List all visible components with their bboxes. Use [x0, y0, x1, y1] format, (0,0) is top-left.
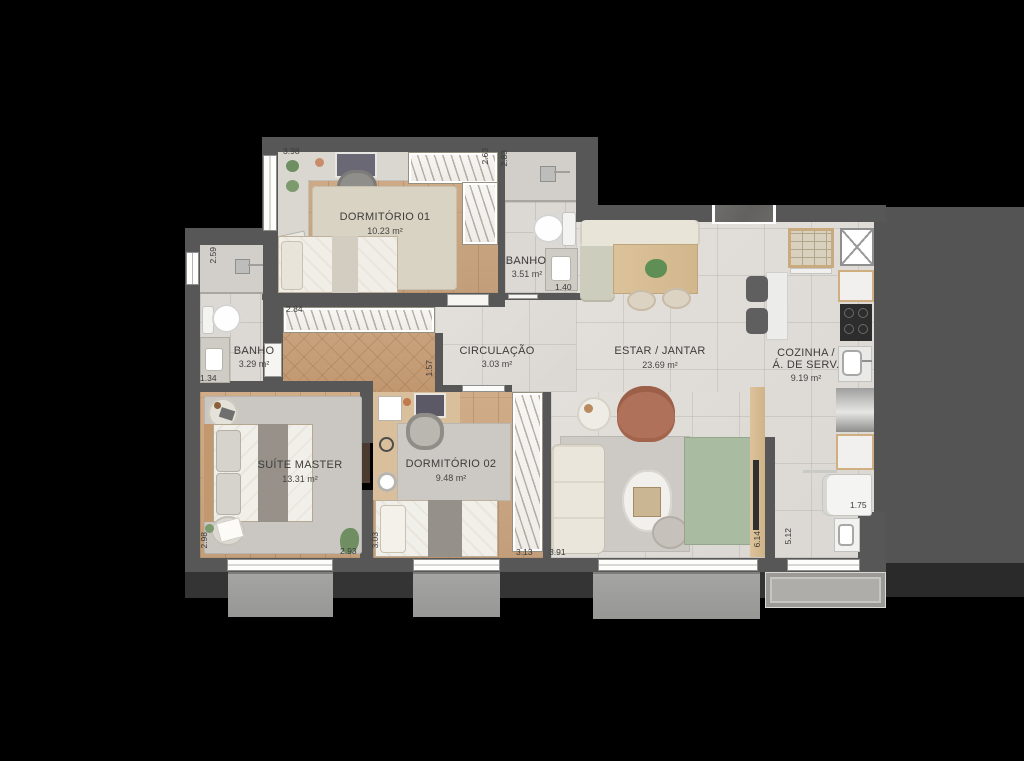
label-cozinha-area: 9.19 m² [791, 373, 822, 383]
tv-icon [753, 460, 759, 530]
living-balcony-slab [593, 572, 760, 619]
suite-bed-headboard [204, 424, 213, 522]
plant-icon [286, 160, 299, 172]
dim-living-depth: 6.14 [752, 531, 762, 548]
floor-plan: DORMITÓRIO 01 10.23 m² BANHO 3.51 m² BAN… [0, 0, 1024, 761]
label-circulacao-area: 3.03 m² [482, 359, 513, 369]
service-window [787, 559, 860, 571]
desk-deco [315, 158, 324, 167]
side-table-round [577, 397, 611, 431]
table-deco [214, 402, 221, 409]
dim-dorm01-width: 3.98 [283, 146, 300, 156]
dishwasher [836, 388, 874, 432]
wall [505, 385, 512, 392]
dorm02-closet [512, 392, 543, 552]
wall [858, 512, 886, 558]
wall [498, 152, 505, 300]
dim-suite-depth: 2.98 [199, 532, 209, 549]
bar-chair [746, 276, 768, 302]
neighbor-mass [874, 207, 1024, 563]
sink-basin [205, 348, 223, 371]
dorm02-balcony-slab [413, 572, 500, 617]
wall [262, 137, 598, 152]
wall [435, 333, 443, 392]
wall [443, 385, 462, 392]
dorm01-door-threshold [447, 294, 489, 306]
neighbor-mass-base [874, 563, 1024, 597]
dorm01-closet-side [462, 182, 498, 245]
sink-tap [862, 360, 872, 362]
sofa-vertical [551, 444, 605, 554]
shower-pipe [554, 171, 570, 173]
toilet-tank [562, 212, 576, 246]
plant-icon [286, 180, 299, 192]
kitchen-divider [803, 470, 837, 473]
toilet-icon [533, 214, 564, 243]
dorm02-door-leaf [462, 385, 505, 392]
service-terrace [765, 572, 886, 608]
dim-dorm02-width: 3.13 [516, 547, 533, 557]
table-deco [584, 404, 593, 413]
entry-door-mat [712, 205, 776, 224]
kitchen-sink-basin [842, 350, 862, 376]
toilet-icon [212, 304, 241, 333]
living-window [598, 559, 758, 571]
laundry-basin [838, 524, 854, 546]
desk-deco [403, 398, 411, 406]
dim-suite-width: 2.93 [340, 546, 357, 556]
banho1-door-threshold [508, 294, 538, 299]
label-dorm02-area: 9.48 m² [436, 473, 467, 483]
shower-pipe [248, 264, 263, 266]
label-dorm01: DORMITÓRIO 01 [340, 211, 431, 223]
label-estar-area: 23.69 m² [642, 360, 678, 370]
dorm02-bed-runner [428, 500, 462, 557]
wall [543, 392, 551, 558]
dim-hall-depth: 1.57 [424, 360, 434, 377]
cooktop-burner [858, 308, 868, 318]
label-dorm02: DORMITÓRIO 02 [406, 458, 497, 470]
pillow [281, 241, 303, 290]
cooktop-burner [844, 324, 854, 334]
headphones-icon [379, 437, 394, 452]
label-estar: ESTAR / JANTAR [614, 345, 705, 357]
sink-basin [551, 256, 571, 281]
sofa-corner-chaise [580, 246, 615, 302]
label-banho2-area: 3.29 m² [239, 359, 270, 369]
label-suite: SUÍTE MASTER [258, 459, 343, 471]
dorm01-window [263, 155, 277, 231]
dim-banho2-depth: 2.59 [208, 247, 218, 264]
wall [765, 437, 775, 558]
shower-head-icon [540, 166, 556, 182]
suite-balcony-slab [228, 572, 333, 617]
armchair [617, 386, 675, 442]
label-dorm01-area: 10.23 m² [367, 226, 403, 236]
label-banho2: BANHO [234, 345, 275, 357]
label-banho1-area: 3.51 m² [512, 269, 543, 279]
dim-dorm02-depth: 3.03 [370, 532, 380, 549]
clock-icon [377, 472, 397, 492]
rug-green [684, 437, 754, 545]
label-suite-area: 13.31 m² [282, 474, 318, 484]
suite-bed-runner [258, 424, 288, 522]
coffee-table-tray [633, 487, 661, 517]
kitchen-counter [838, 270, 874, 302]
dining-stool [627, 290, 656, 311]
sofa-corner-back [580, 220, 700, 247]
dim-living-width: 3.91 [549, 547, 566, 557]
pillow [380, 505, 406, 553]
pillow [216, 430, 241, 472]
dorm02-window [413, 559, 500, 571]
dim-banho1-width: 1.40 [555, 282, 572, 292]
wall [576, 137, 598, 222]
pouf [652, 516, 688, 549]
dorm01-bed-runner [332, 236, 358, 293]
dim-hall-closet: 2.84 [286, 304, 303, 314]
kitchen-counter [836, 434, 874, 470]
cooktop-burner [858, 324, 868, 334]
label-cozinha-2: Á. DE SERV. [773, 359, 840, 371]
notebook-deco [378, 396, 402, 421]
banho2-window [186, 252, 199, 285]
suite-door-leaf [362, 443, 370, 483]
kitchen-island [766, 272, 788, 340]
duct-shaft [840, 228, 874, 266]
dim-kitchen-depth: 5.12 [783, 528, 793, 545]
pillow [216, 473, 241, 515]
label-cozinha-1: COZINHA / [777, 347, 835, 359]
label-banho1: BANHO [506, 255, 547, 267]
masonry-shaft [788, 228, 834, 268]
dining-stool [662, 288, 691, 309]
cooktop-burner [844, 308, 854, 318]
wall [185, 228, 265, 245]
shower-head-icon [235, 259, 250, 274]
plant-centerpiece [645, 259, 667, 278]
dim-service-width: 1.75 [850, 500, 867, 510]
dim-banho1-depth: 2.83 [499, 150, 509, 167]
dim-banho2-width: 1.34 [200, 373, 217, 383]
label-circulacao: CIRCULAÇÃO [459, 345, 534, 357]
desk-chair [406, 413, 444, 450]
dim-dorm01-depth: 2.63 [480, 148, 490, 165]
hall-closet [283, 307, 435, 333]
bar-chair [746, 308, 768, 334]
shaft-ledge [790, 268, 832, 274]
suite-window [227, 559, 333, 571]
